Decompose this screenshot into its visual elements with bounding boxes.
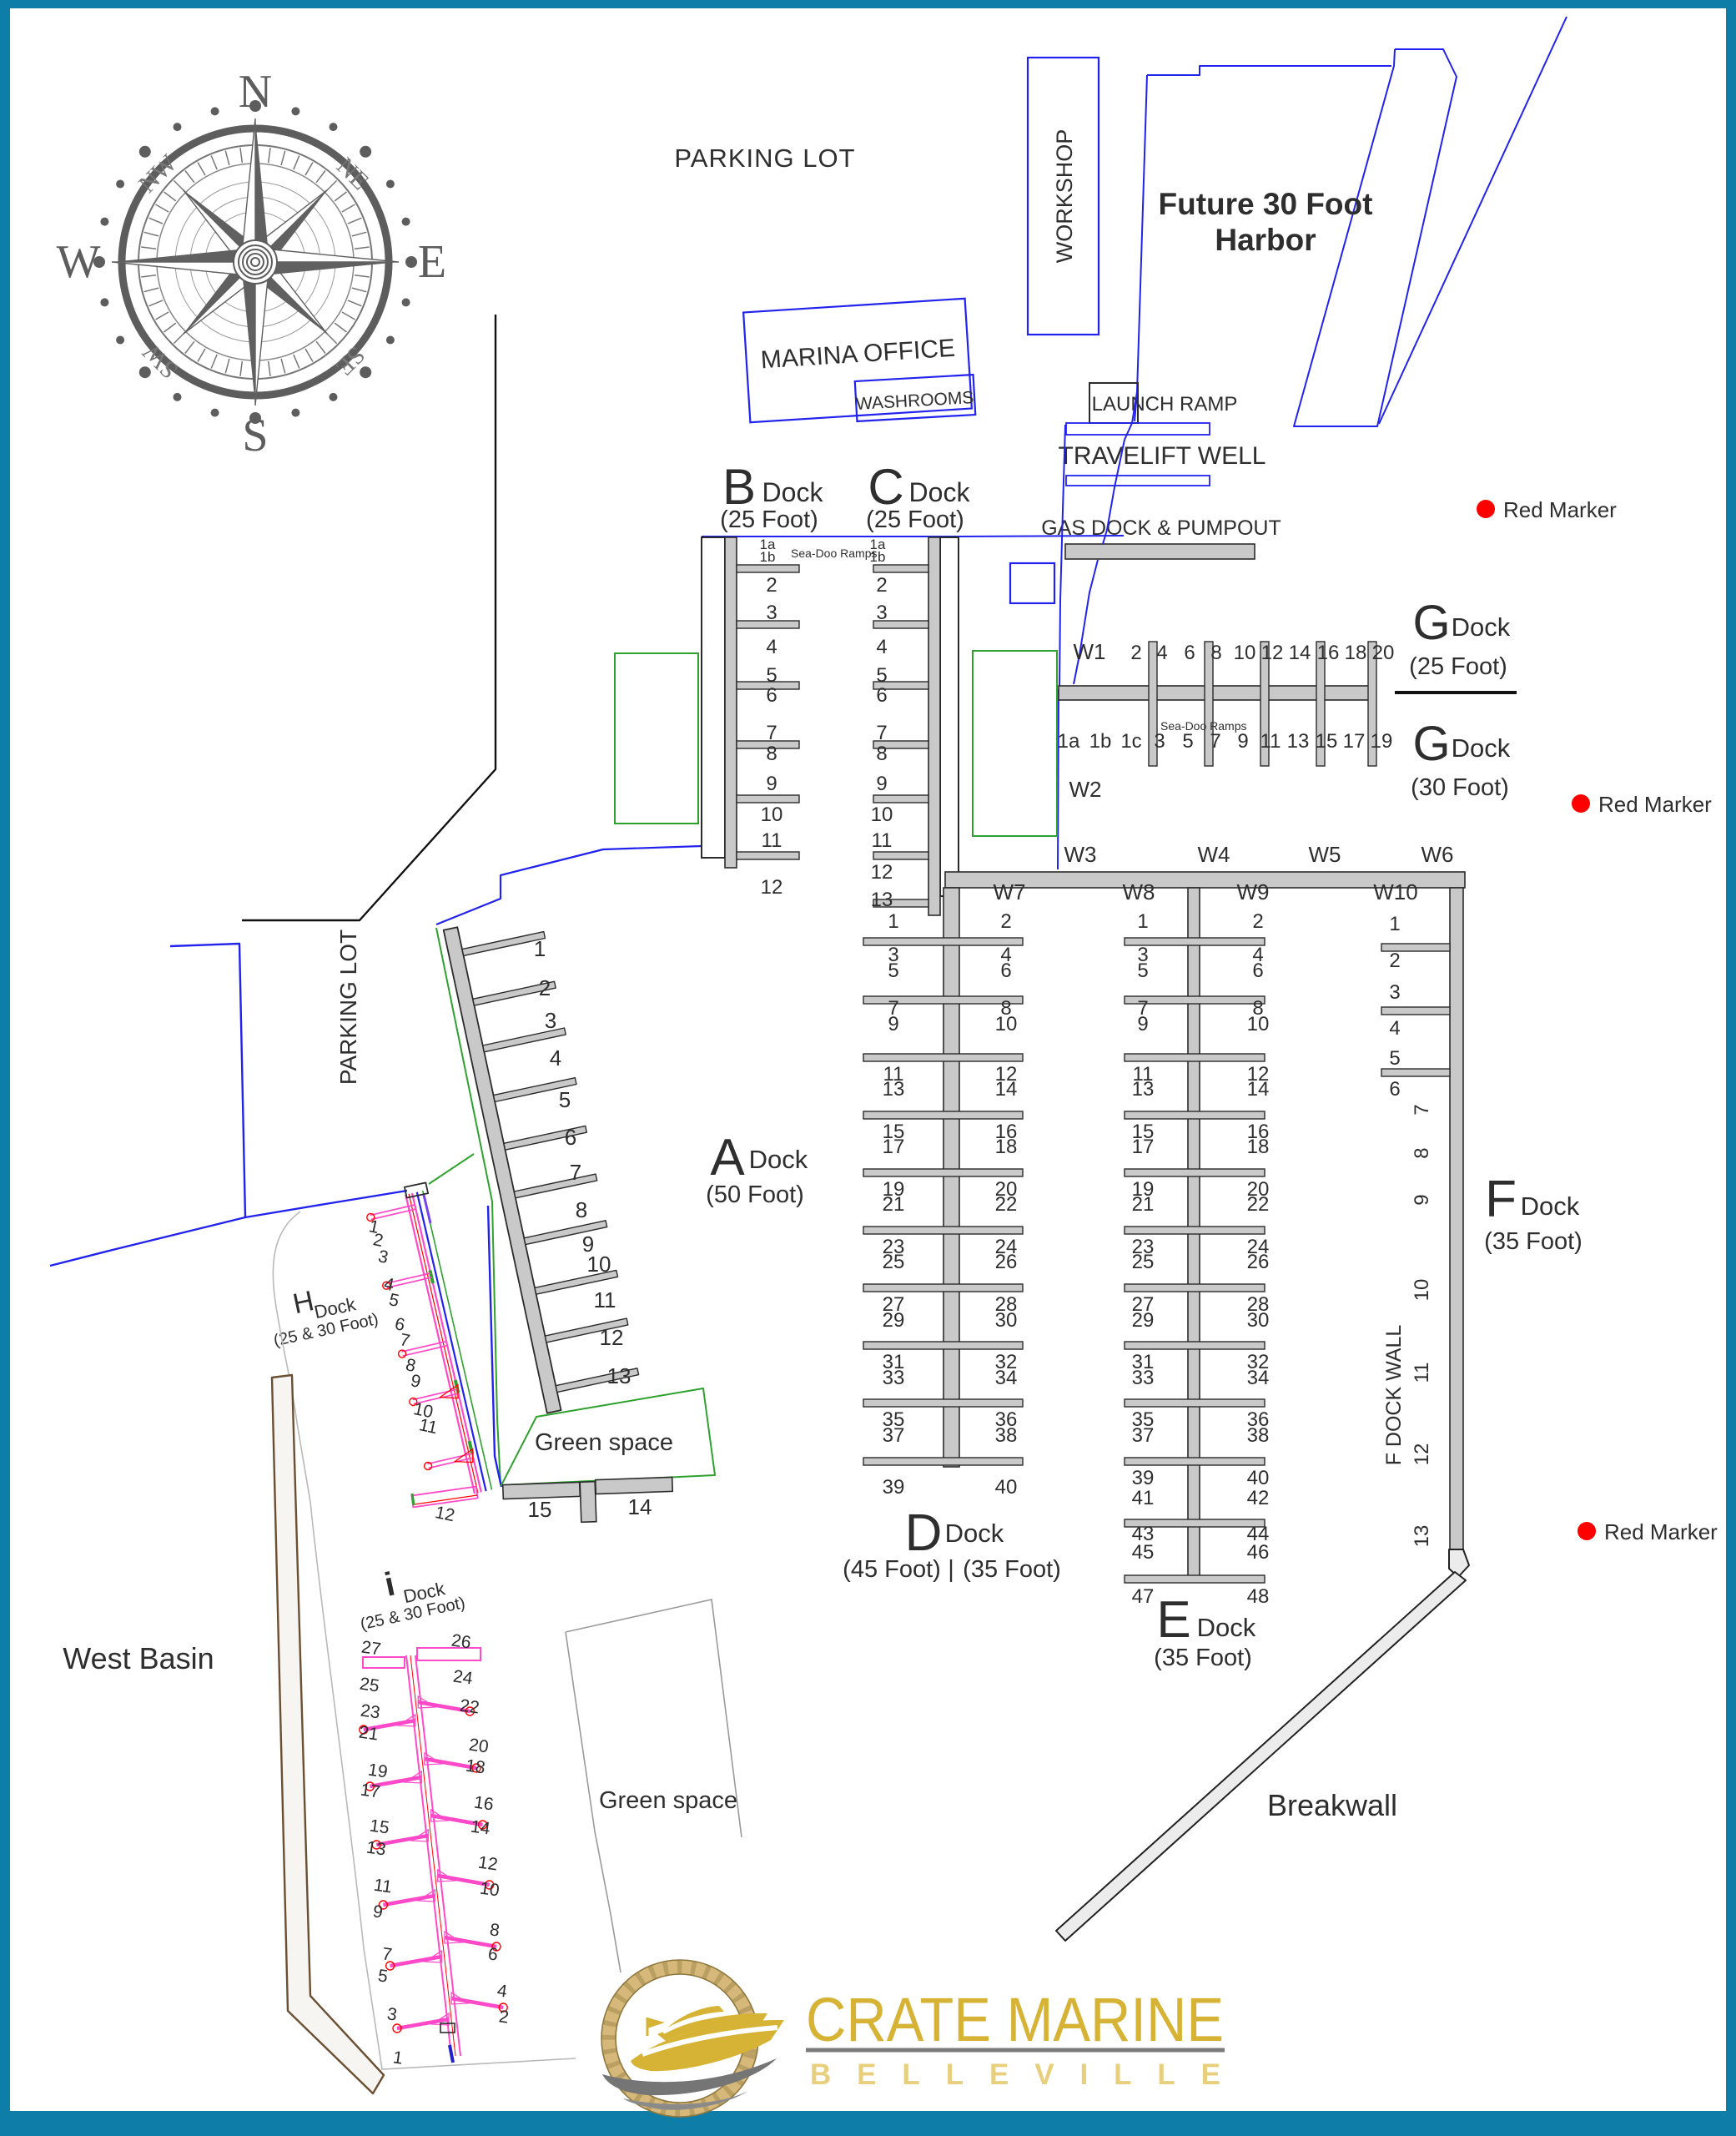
- svg-text:19: 19: [367, 1761, 389, 1782]
- svg-text:3: 3: [766, 602, 777, 624]
- svg-text:2: 2: [1000, 910, 1011, 933]
- svg-text:Future 30 Foot: Future 30 Foot: [1159, 187, 1373, 221]
- svg-text:3: 3: [545, 1008, 556, 1033]
- svg-text:17: 17: [1343, 730, 1366, 753]
- svg-text:11: 11: [762, 829, 782, 852]
- svg-text:9: 9: [1411, 1194, 1433, 1205]
- svg-text:1b: 1b: [870, 549, 886, 565]
- svg-text:13: 13: [1411, 1525, 1433, 1548]
- svg-text:18: 18: [1345, 642, 1367, 664]
- svg-text:2: 2: [1389, 950, 1400, 972]
- svg-text:Dock: Dock: [762, 477, 824, 507]
- svg-text:30: 30: [1247, 1309, 1270, 1332]
- svg-text:5: 5: [888, 960, 898, 982]
- svg-text:14: 14: [1289, 642, 1311, 664]
- svg-text:21: 21: [883, 1193, 905, 1216]
- svg-text:(35 Foot): (35 Foot): [1484, 1228, 1583, 1255]
- svg-text:6: 6: [876, 684, 887, 707]
- svg-text:38: 38: [1247, 1424, 1270, 1447]
- svg-text:5: 5: [766, 664, 777, 687]
- svg-text:WORKSHOP: WORKSHOP: [1052, 129, 1077, 264]
- svg-text:21: 21: [358, 1723, 380, 1745]
- svg-text:W3: W3: [1064, 842, 1097, 867]
- svg-text:6: 6: [1184, 642, 1195, 664]
- svg-text:West Basin: West Basin: [63, 1641, 214, 1675]
- svg-text:12: 12: [477, 1853, 499, 1875]
- svg-text:6: 6: [1252, 960, 1263, 982]
- svg-text:10: 10: [479, 1879, 501, 1901]
- svg-text:8: 8: [766, 743, 777, 765]
- svg-text:4: 4: [876, 636, 887, 658]
- svg-text:4: 4: [550, 1045, 561, 1071]
- svg-text:6: 6: [1389, 1078, 1400, 1101]
- svg-text:37: 37: [1132, 1424, 1155, 1447]
- svg-text:F DOCK WALL: F DOCK WALL: [1382, 1325, 1406, 1466]
- svg-text:PARKING LOT: PARKING LOT: [335, 929, 361, 1085]
- svg-text:11: 11: [872, 829, 893, 852]
- svg-text:N: N: [239, 66, 272, 118]
- svg-text:1: 1: [888, 910, 898, 933]
- svg-text:42: 42: [1247, 1487, 1270, 1509]
- svg-text:G: G: [1412, 717, 1450, 771]
- svg-text:W: W: [57, 236, 101, 288]
- svg-text:Red Marker: Red Marker: [1503, 497, 1617, 522]
- svg-text:16: 16: [1317, 642, 1340, 664]
- svg-text:Red Marker: Red Marker: [1604, 1519, 1718, 1544]
- svg-text:Harbor: Harbor: [1215, 223, 1316, 257]
- svg-text:W8: W8: [1123, 879, 1155, 904]
- svg-text:40: 40: [995, 1476, 1018, 1499]
- svg-text:17: 17: [883, 1136, 905, 1158]
- svg-text:7: 7: [1210, 730, 1220, 753]
- svg-text:5: 5: [1389, 1047, 1400, 1070]
- svg-text:W1: W1: [1074, 639, 1106, 664]
- svg-text:Dock: Dock: [1521, 1191, 1580, 1221]
- svg-text:38: 38: [995, 1424, 1018, 1447]
- svg-text:2: 2: [539, 975, 551, 1000]
- svg-text:34: 34: [1247, 1367, 1270, 1389]
- svg-text:A: A: [710, 1129, 745, 1186]
- svg-text:9: 9: [888, 1013, 898, 1035]
- svg-text:14: 14: [628, 1494, 652, 1519]
- svg-text:8: 8: [1210, 642, 1221, 664]
- svg-text:15: 15: [1316, 730, 1338, 753]
- svg-text:S: S: [242, 410, 268, 461]
- svg-text:10: 10: [1411, 1279, 1433, 1302]
- svg-text:25: 25: [359, 1675, 380, 1696]
- svg-text:3: 3: [1154, 730, 1165, 753]
- svg-text:W9: W9: [1237, 879, 1270, 904]
- svg-text:16: 16: [473, 1793, 495, 1815]
- svg-text:12: 12: [434, 1503, 457, 1525]
- svg-text:17: 17: [360, 1781, 381, 1802]
- svg-text:39: 39: [1132, 1467, 1155, 1489]
- svg-text:45: 45: [1132, 1541, 1155, 1564]
- svg-text:(35 Foot): (35 Foot): [963, 1556, 1061, 1583]
- svg-text:26: 26: [995, 1251, 1018, 1273]
- svg-text:12: 12: [600, 1325, 624, 1350]
- svg-text:Green space: Green space: [599, 1787, 737, 1814]
- svg-text:14: 14: [470, 1817, 492, 1839]
- svg-text:26: 26: [450, 1631, 472, 1653]
- svg-text:1: 1: [1389, 913, 1400, 935]
- svg-text:24: 24: [452, 1667, 475, 1689]
- svg-text:6: 6: [766, 684, 777, 707]
- svg-text:W2: W2: [1069, 777, 1102, 802]
- svg-text:11: 11: [594, 1287, 616, 1312]
- svg-text:20: 20: [1372, 642, 1395, 664]
- svg-text:11: 11: [1260, 730, 1281, 753]
- svg-text:14: 14: [995, 1078, 1018, 1101]
- svg-text:G: G: [1412, 596, 1450, 650]
- svg-text:4: 4: [1389, 1017, 1400, 1040]
- svg-text:30: 30: [995, 1309, 1018, 1332]
- svg-text:18: 18: [465, 1756, 486, 1778]
- svg-text:10: 10: [871, 804, 893, 826]
- svg-text:13: 13: [365, 1838, 387, 1860]
- svg-text:12: 12: [1261, 642, 1284, 664]
- svg-text:40: 40: [1247, 1467, 1270, 1489]
- svg-text:47: 47: [1132, 1585, 1155, 1608]
- svg-text:7: 7: [570, 1160, 581, 1185]
- svg-text:(50 Foot): (50 Foot): [706, 1181, 804, 1208]
- svg-text:W7: W7: [994, 879, 1026, 904]
- svg-text:25: 25: [1132, 1251, 1155, 1273]
- svg-text:(30 Foot): (30 Foot): [1411, 774, 1509, 801]
- svg-text:22: 22: [995, 1193, 1018, 1216]
- svg-text:5: 5: [1182, 730, 1193, 753]
- svg-text:(45 Foot): (45 Foot): [843, 1556, 941, 1583]
- svg-text:13: 13: [883, 1078, 905, 1101]
- svg-text:4: 4: [766, 636, 777, 658]
- svg-text:6: 6: [565, 1125, 576, 1150]
- svg-text:2: 2: [876, 574, 887, 597]
- svg-text:Red Marker: Red Marker: [1598, 792, 1712, 817]
- svg-text:TRAVELIFT WELL: TRAVELIFT WELL: [1059, 442, 1266, 470]
- svg-text:13: 13: [607, 1363, 632, 1388]
- svg-text:11: 11: [1411, 1363, 1433, 1383]
- svg-text:25: 25: [883, 1251, 905, 1273]
- svg-text:41: 41: [1132, 1487, 1155, 1509]
- svg-text:10: 10: [1247, 1013, 1270, 1035]
- svg-text:D: D: [905, 1504, 943, 1562]
- svg-text:1: 1: [534, 936, 546, 961]
- svg-text:39: 39: [883, 1476, 905, 1499]
- svg-text:W5: W5: [1309, 842, 1341, 867]
- svg-text:6: 6: [1000, 960, 1011, 982]
- svg-text:4: 4: [1156, 642, 1167, 664]
- svg-text:(35 Foot): (35 Foot): [1154, 1645, 1252, 1671]
- svg-text:Dock: Dock: [749, 1145, 808, 1174]
- svg-text:W10: W10: [1373, 879, 1417, 904]
- svg-text:18: 18: [1247, 1136, 1270, 1158]
- svg-text:23: 23: [360, 1701, 381, 1723]
- svg-text:Dock: Dock: [909, 477, 971, 507]
- svg-text:9: 9: [1137, 1013, 1148, 1035]
- svg-text:10: 10: [1234, 642, 1256, 664]
- svg-text:Sea-Doo Ramps: Sea-Doo Ramps: [791, 547, 878, 560]
- svg-text:33: 33: [1132, 1367, 1155, 1389]
- svg-text:1: 1: [1137, 910, 1148, 933]
- svg-text:5: 5: [1137, 960, 1148, 982]
- svg-text:(25 Foot): (25 Foot): [720, 506, 818, 533]
- svg-text:W6: W6: [1422, 842, 1454, 867]
- svg-text:22: 22: [1247, 1193, 1270, 1216]
- svg-text:20: 20: [468, 1735, 490, 1757]
- svg-text:Dock: Dock: [1197, 1613, 1256, 1642]
- svg-text:10: 10: [761, 804, 783, 826]
- svg-text:Dock: Dock: [945, 1519, 1004, 1548]
- svg-text:29: 29: [1132, 1309, 1155, 1332]
- svg-text:8: 8: [876, 743, 887, 765]
- svg-text:12: 12: [761, 876, 783, 899]
- svg-text:1b: 1b: [1089, 730, 1112, 753]
- svg-text:13: 13: [1132, 1078, 1155, 1101]
- svg-text:9: 9: [766, 773, 777, 795]
- svg-text:17: 17: [1132, 1136, 1155, 1158]
- svg-text:12: 12: [1411, 1443, 1433, 1466]
- svg-text:7: 7: [766, 722, 777, 744]
- svg-text:2: 2: [1252, 910, 1263, 933]
- svg-text:Dock: Dock: [1452, 733, 1511, 763]
- svg-text:3: 3: [1389, 981, 1400, 1004]
- svg-text:|: |: [948, 1556, 954, 1583]
- svg-text:9: 9: [1237, 730, 1248, 753]
- svg-text:15: 15: [528, 1497, 552, 1522]
- svg-text:18: 18: [995, 1136, 1018, 1158]
- svg-text:21: 21: [1132, 1193, 1155, 1216]
- svg-text:11: 11: [373, 1876, 394, 1897]
- svg-text:26: 26: [1247, 1251, 1270, 1273]
- svg-text:W4: W4: [1198, 842, 1230, 867]
- svg-text:10: 10: [995, 1013, 1018, 1035]
- svg-text:15: 15: [369, 1816, 390, 1838]
- svg-text:14: 14: [1247, 1078, 1270, 1101]
- svg-text:46: 46: [1247, 1541, 1270, 1564]
- svg-text:8: 8: [1411, 1147, 1433, 1158]
- svg-text:34: 34: [995, 1367, 1018, 1389]
- svg-text:7: 7: [1411, 1104, 1433, 1115]
- svg-text:(25 Foot): (25 Foot): [1409, 653, 1507, 680]
- svg-text:19: 19: [1371, 730, 1393, 753]
- svg-text:22: 22: [459, 1696, 481, 1718]
- svg-text:Sea-Doo Ramps: Sea-Doo Ramps: [1160, 719, 1247, 733]
- svg-text:3: 3: [876, 602, 887, 624]
- svg-text:48: 48: [1247, 1585, 1270, 1608]
- svg-text:Dock: Dock: [1452, 612, 1511, 642]
- svg-text:1c: 1c: [1120, 730, 1141, 753]
- svg-text:33: 33: [883, 1367, 905, 1389]
- svg-text:Breakwall: Breakwall: [1267, 1788, 1397, 1822]
- svg-text:(25 Foot): (25 Foot): [866, 506, 964, 533]
- svg-text:PARKING LOT: PARKING LOT: [674, 144, 855, 173]
- svg-text:Green space: Green space: [535, 1429, 673, 1456]
- svg-text:9: 9: [876, 773, 887, 795]
- svg-text:1b: 1b: [760, 549, 776, 565]
- svg-text:10: 10: [587, 1252, 611, 1277]
- svg-text:7: 7: [876, 722, 887, 744]
- svg-text:37: 37: [883, 1424, 905, 1447]
- svg-text:E: E: [1156, 1591, 1190, 1649]
- svg-text:2: 2: [766, 574, 777, 597]
- svg-text:13: 13: [871, 889, 893, 911]
- svg-text:12: 12: [871, 861, 893, 884]
- svg-text:8: 8: [576, 1197, 587, 1222]
- svg-text:29: 29: [883, 1309, 905, 1332]
- svg-text:2: 2: [1130, 642, 1141, 664]
- svg-text:CRATE MARINE: CRATE MARINE: [806, 1985, 1224, 2054]
- svg-text:13: 13: [1287, 730, 1310, 753]
- svg-text:5: 5: [876, 664, 887, 687]
- svg-text:F: F: [1485, 1171, 1517, 1228]
- svg-text:E: E: [418, 236, 446, 288]
- svg-text:27: 27: [360, 1638, 382, 1660]
- svg-text:LAUNCH RAMP: LAUNCH RAMP: [1092, 393, 1238, 416]
- svg-text:5: 5: [559, 1087, 571, 1112]
- svg-text:1a: 1a: [1058, 730, 1080, 753]
